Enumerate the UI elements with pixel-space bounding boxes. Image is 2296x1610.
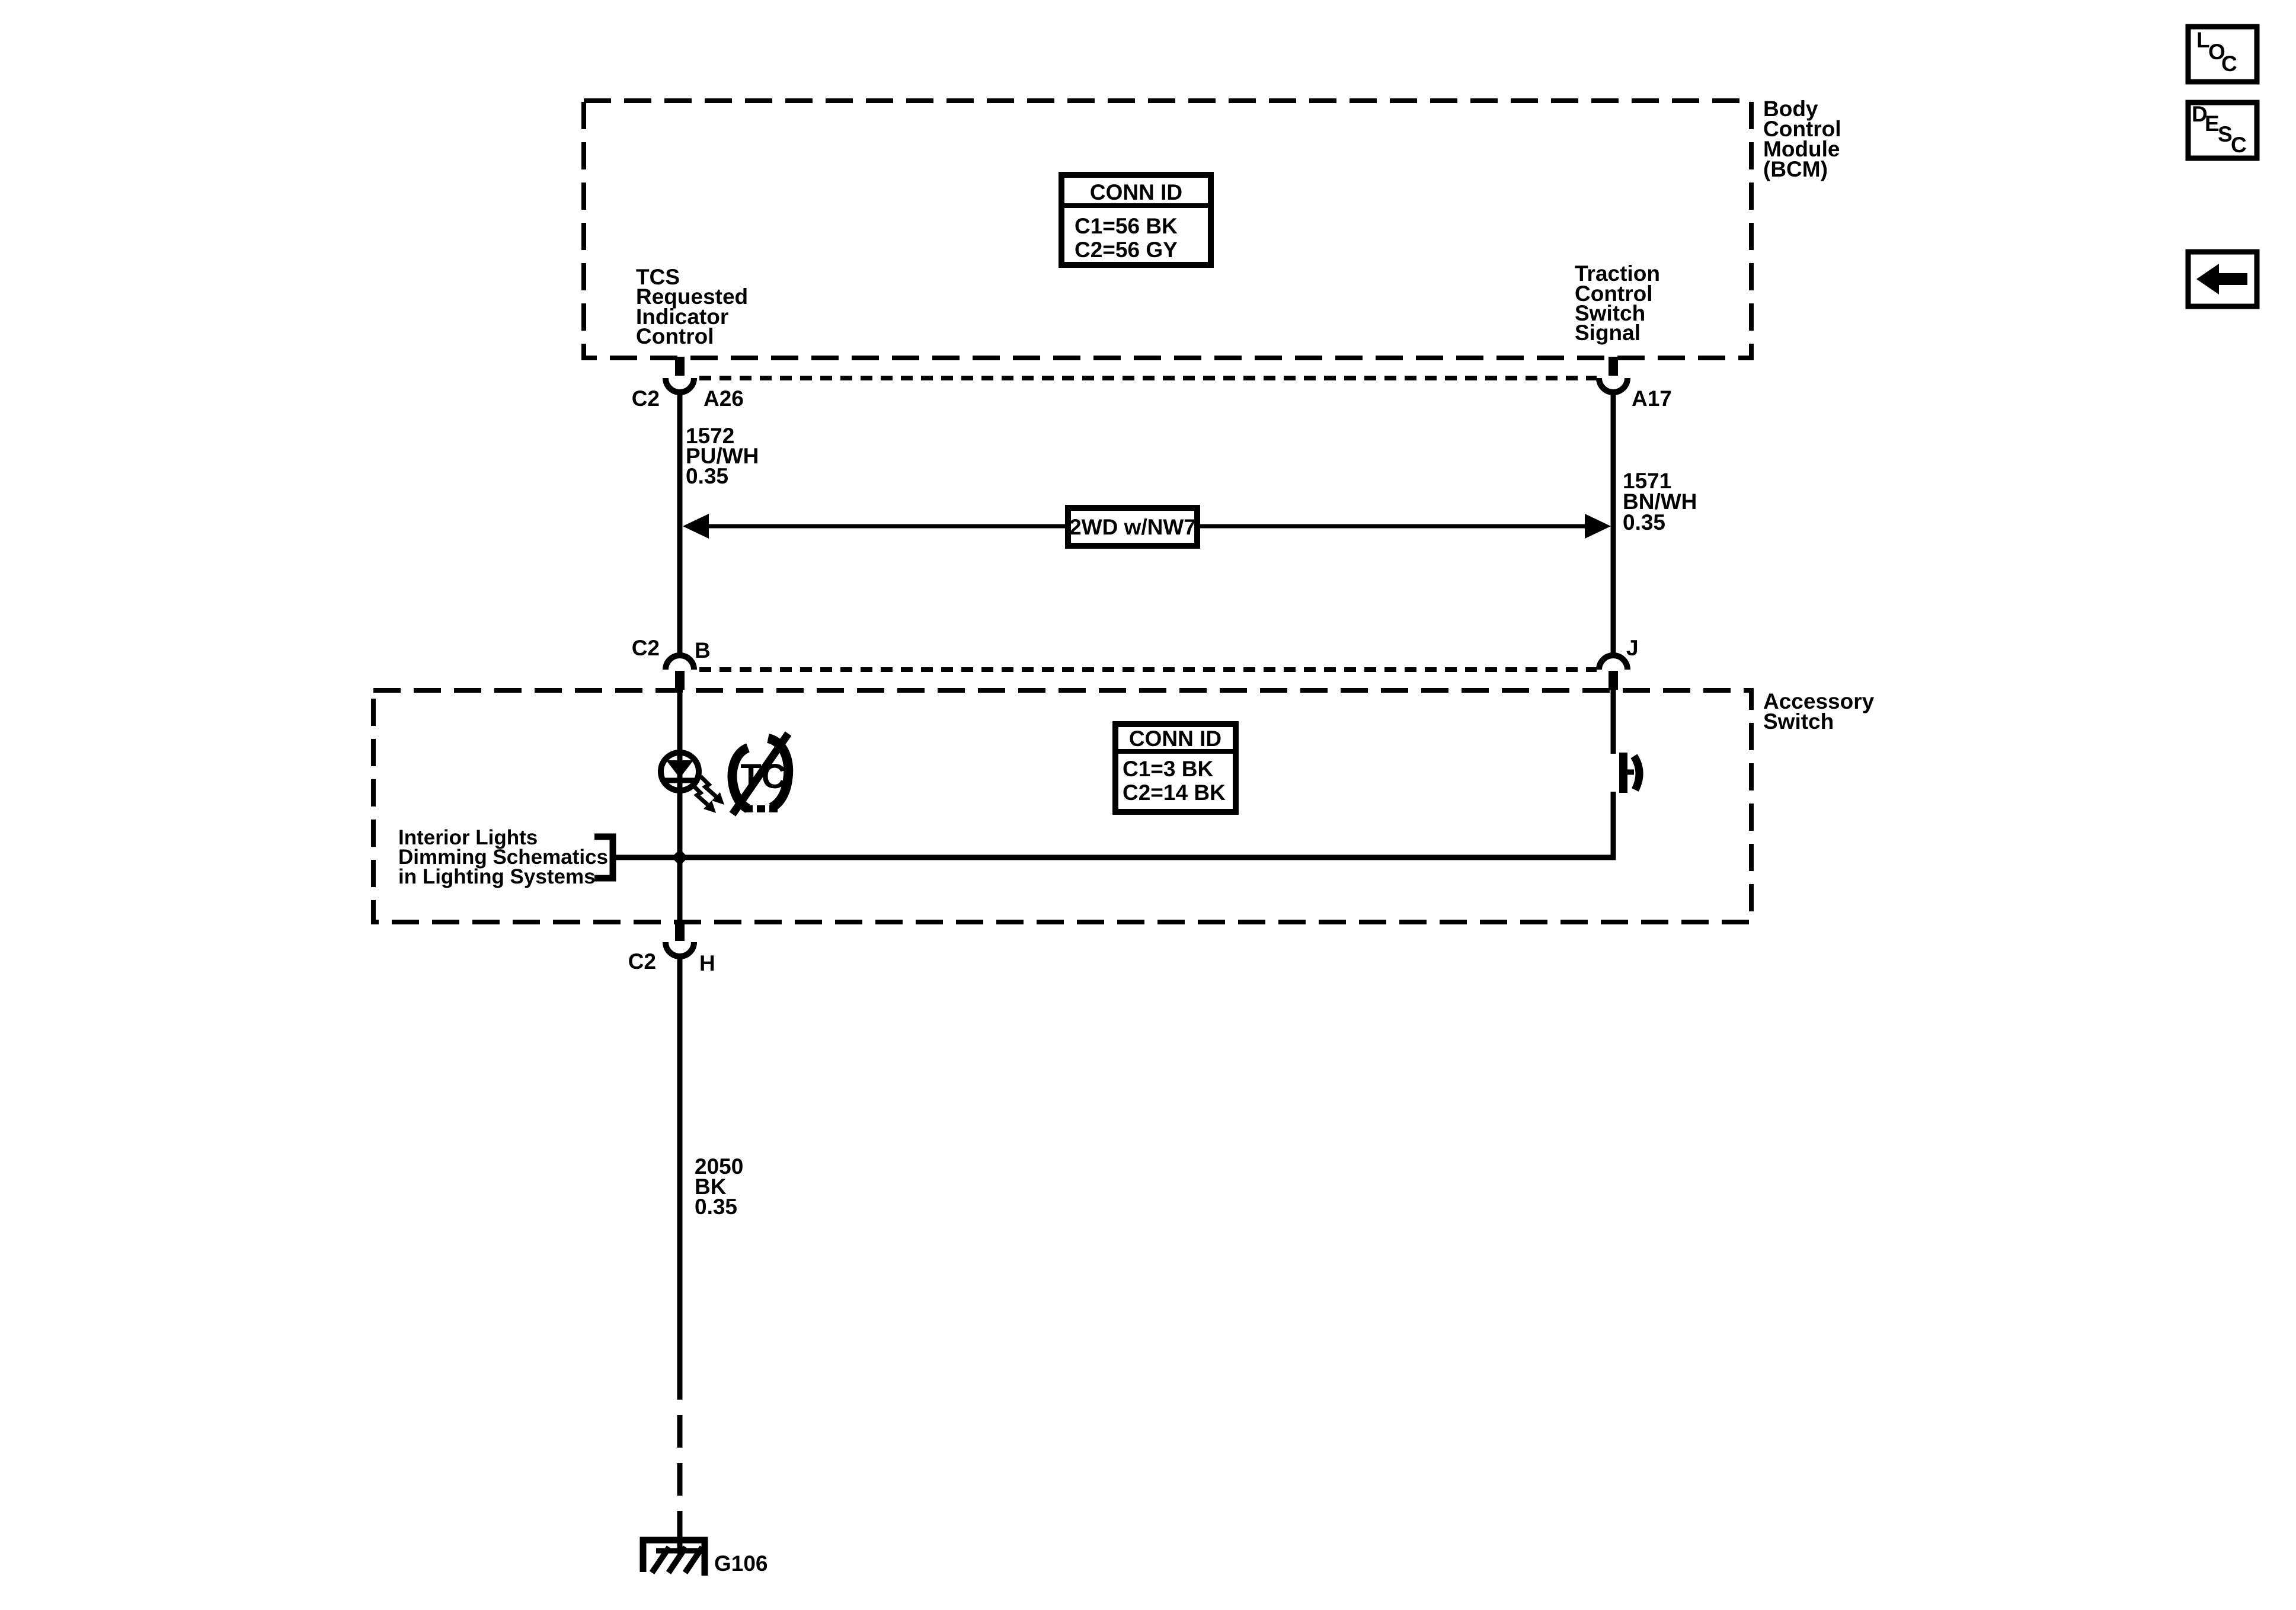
conn-id-row: C1=56 BK	[1075, 214, 1178, 238]
pin-id-label: J	[1626, 636, 1639, 660]
schematic-canvas: Body Control Module (BCM) CONN ID C1=56 …	[0, 0, 2296, 1610]
conn-id-title: CONN ID	[1090, 180, 1182, 204]
wire-gauge: 0.35	[686, 464, 728, 488]
inline-connector-row1: C2 A26 A17	[632, 357, 1672, 411]
back-button[interactable]	[2188, 252, 2257, 306]
bcm-module: Body Control Module (BCM) CONN ID C1=56 …	[584, 97, 1841, 358]
right-arrowhead-icon	[1585, 514, 1611, 539]
desc-letter: E	[2205, 111, 2220, 136]
led-indicator-symbol	[661, 753, 724, 813]
connector-row3-c2h: C2 H	[628, 922, 715, 975]
diode-triangle-icon	[666, 760, 693, 778]
desc-letter: C	[2231, 133, 2247, 157]
inline-connector-row2: C2 B J	[632, 636, 1639, 690]
ground-symbol-g106: G106	[643, 1540, 768, 1576]
right-wire-1571: 1571 BN/WH 0.35	[1613, 392, 1697, 654]
connector-terminal-icon	[666, 378, 694, 392]
wiring-diagram-page: Body Control Module (BCM) CONN ID C1=56 …	[0, 0, 2296, 1610]
nav-rail: L O C D E S C	[2188, 27, 2257, 306]
ground-wire-2050: 2050 BK 0.35	[680, 956, 743, 1554]
bcm-label: Body Control Module (BCM)	[1763, 97, 1841, 181]
desc-button[interactable]: D E S C	[2188, 102, 2257, 158]
connector-id-label: C2	[632, 636, 660, 660]
pin-id-label: H	[699, 951, 715, 975]
switch-contact-symbol	[1613, 690, 1639, 793]
switch-movable-contact-arc	[1634, 756, 1639, 790]
left-arrowhead-icon	[683, 514, 709, 539]
tcs-pin-function-label: TCS Requested Indicator Control	[636, 265, 748, 348]
bcm-conn-id-table: CONN ID C1=56 BK C2=56 GY	[1061, 175, 1211, 265]
connector-terminal-icon	[1599, 655, 1627, 670]
traction-pin-function-label: Traction Control Switch Signal	[1575, 261, 1660, 345]
note-line: in Lighting Systems	[398, 865, 596, 888]
tc-off-icon: TC	[733, 734, 789, 814]
connector-id-label: C2	[632, 386, 660, 411]
pin-id-label: A17	[1632, 386, 1672, 411]
connector-terminal-icon	[666, 655, 694, 670]
connector-id-label: C2	[628, 949, 656, 974]
conn-id-row: C1=3 BK	[1123, 757, 1213, 781]
accessory-conn-id-table: CONN ID C1=3 BK C2=14 BK	[1115, 724, 1236, 812]
interior-lights-note: Interior Lights Dimming Schematics in Li…	[398, 792, 1613, 888]
conn-id-title: CONN ID	[1129, 726, 1221, 751]
accessory-switch-module: Accessory Switch CONN ID C1=3 BK C2=14 B…	[373, 689, 1875, 922]
option-span-arrow: 2WD w/NW7	[683, 508, 1611, 546]
pin-id-label: A26	[703, 386, 744, 411]
pin-function-line: Control	[636, 324, 714, 348]
connector-terminal-icon	[1599, 378, 1627, 392]
pin-id-label: B	[695, 638, 711, 662]
loc-button[interactable]: L O C	[2188, 27, 2257, 82]
pin-function-line: Signal	[1575, 321, 1641, 345]
accessory-label: Accessory Switch	[1763, 689, 1875, 734]
loc-letter: C	[2221, 52, 2237, 76]
desc-letter: S	[2218, 122, 2233, 146]
accessory-label-line: Switch	[1763, 709, 1834, 734]
ground-id-label: G106	[714, 1551, 768, 1576]
connector-terminal-icon	[666, 942, 694, 956]
wire-gauge: 0.35	[1623, 510, 1665, 534]
option-label: 2WD w/NW7	[1069, 515, 1196, 539]
wire-junction-dot	[671, 849, 688, 866]
conn-id-row: C2=14 BK	[1123, 780, 1226, 805]
conn-id-row: C2=56 GY	[1075, 238, 1178, 262]
bcm-label-line: (BCM)	[1763, 157, 1828, 181]
wire-gauge: 0.35	[695, 1195, 737, 1219]
